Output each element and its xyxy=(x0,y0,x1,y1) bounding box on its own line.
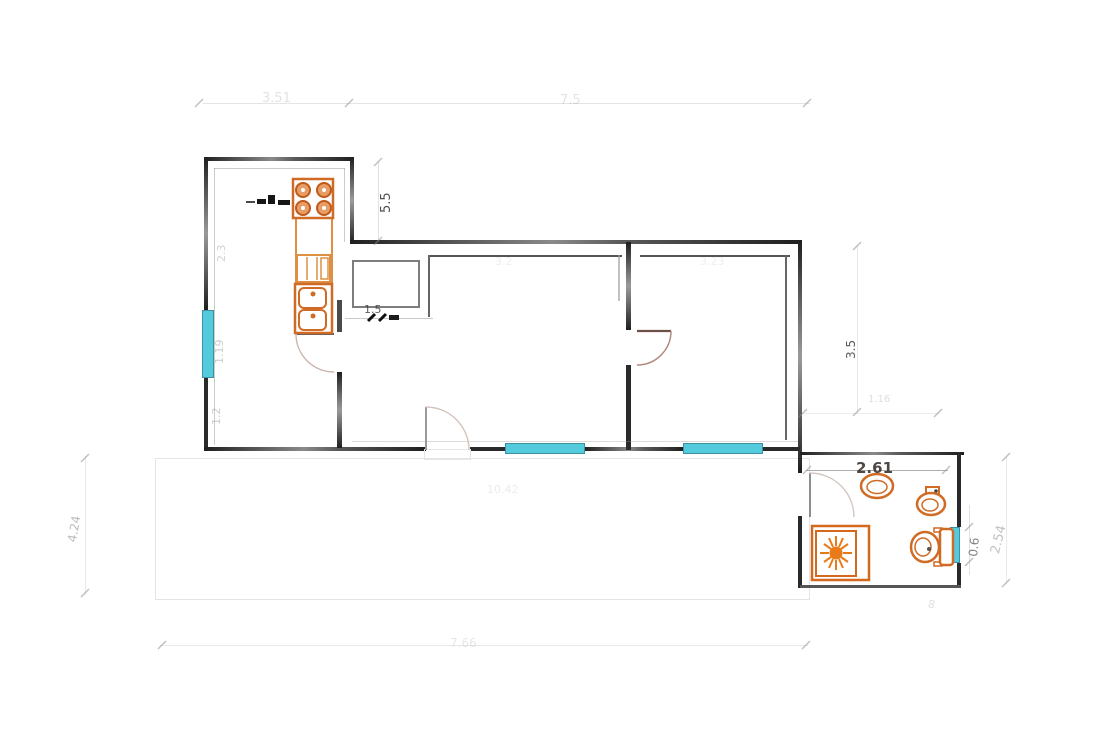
dim-room-2: 3.23 xyxy=(700,256,725,267)
kitchen-wall-symbol xyxy=(246,195,290,205)
kitchen-inner-right-line xyxy=(344,168,345,242)
room1-inner-left-line xyxy=(428,255,430,317)
dim-bathroom-width: 2.61 xyxy=(856,461,893,476)
bottom-wall-d xyxy=(763,447,800,451)
hallway-dim-line xyxy=(345,318,433,319)
bathroom-window xyxy=(950,527,960,563)
bathroom-right-wall-upper xyxy=(957,452,961,527)
right-wall-dim-line xyxy=(857,246,858,413)
room2-window xyxy=(683,443,763,454)
terrace-bottom-dim-line xyxy=(160,645,808,646)
room-divider-wall-upper xyxy=(626,242,631,330)
kitchen-inner-top-line xyxy=(214,168,345,169)
kitchen-cabinet-icon xyxy=(297,255,330,282)
above-bathroom-dim-line xyxy=(801,413,940,414)
dim-top-right: 7.5 xyxy=(560,94,581,107)
bathroom-door xyxy=(810,473,854,517)
dim-room-1: 3.2 xyxy=(495,256,513,267)
dim-terrace-bottom: 7.66 xyxy=(450,637,477,649)
bathroom-top-wall xyxy=(800,452,964,455)
dim-kitchen-lower: 1.2 xyxy=(211,408,222,426)
toilet-icon xyxy=(911,528,953,566)
bottom-wall-b xyxy=(470,447,505,451)
floor-plan-drawing: 3.51 7.5 5.5 2.3 1.19 1.2 1.5 3.5 1.16 2… xyxy=(0,0,1109,741)
dim-kitchen-upper: 2.3 xyxy=(216,245,227,263)
room-divider-wall-lower xyxy=(626,365,631,450)
kitchen-right-lower-wall xyxy=(337,372,342,448)
shower-icon xyxy=(812,526,869,580)
kitchen-counter xyxy=(296,179,332,333)
entrance-threshold xyxy=(424,449,471,460)
right-wall-upper xyxy=(798,240,802,473)
bathroom-bottom-wall xyxy=(800,585,961,588)
dim-bathroom-bottom: 8 xyxy=(927,598,936,610)
kitchen-right-upper-wall xyxy=(350,157,354,244)
fixtures-overlay xyxy=(0,0,1109,741)
dim-right-wall: 3.5 xyxy=(845,340,857,359)
dim-terrace-inner: 10.42 xyxy=(487,484,519,495)
kitchen-inner-left-line xyxy=(214,168,215,445)
dim-kitchen-step: 5.5 xyxy=(380,192,393,213)
kitchen-door xyxy=(296,334,334,372)
bidet-icon xyxy=(917,487,945,515)
kitchen-left-wall-upper xyxy=(204,157,208,310)
kitchen-top-wall xyxy=(204,157,354,161)
bathroom-height-dim-line xyxy=(1006,456,1007,584)
stove-icon xyxy=(293,179,333,218)
entrance-door xyxy=(426,407,469,450)
room1-inner-top-line xyxy=(430,255,622,257)
dim-bathroom-window: 0.6 xyxy=(967,537,981,557)
dim-kitchen-window: 1.19 xyxy=(214,340,225,365)
living-top-wall xyxy=(350,240,802,244)
living-inner-bottom-line xyxy=(352,441,798,442)
room-divider-door xyxy=(637,331,671,365)
dim-top-left: 3.51 xyxy=(262,92,291,105)
dim-terrace-left: 4.24 xyxy=(66,515,82,543)
bottom-wall-c xyxy=(585,447,683,451)
floor-plan-canvas: 3.51 7.5 5.5 2.3 1.19 1.2 1.5 3.5 1.16 2… xyxy=(0,0,1109,741)
top-dim-line xyxy=(203,103,810,104)
kitchen-sink-icon xyxy=(295,284,332,333)
terrace-left-dim-line xyxy=(85,456,86,595)
dim-above-bathroom: 1.16 xyxy=(868,395,890,405)
bottom-wall-a xyxy=(204,447,426,451)
room1-inner-right-line xyxy=(618,255,620,301)
kitchen-left-wall-lower xyxy=(204,378,208,450)
room2-inner-right-line xyxy=(785,255,787,440)
right-wall-lower xyxy=(798,516,802,588)
room1-window xyxy=(505,443,585,454)
terrace-outline xyxy=(155,458,810,600)
hall-closet xyxy=(352,260,420,308)
dim-hallway: 1.5 xyxy=(364,304,382,315)
washbasin-icon xyxy=(861,474,893,498)
kitchen-right-mid-wall xyxy=(337,300,342,332)
